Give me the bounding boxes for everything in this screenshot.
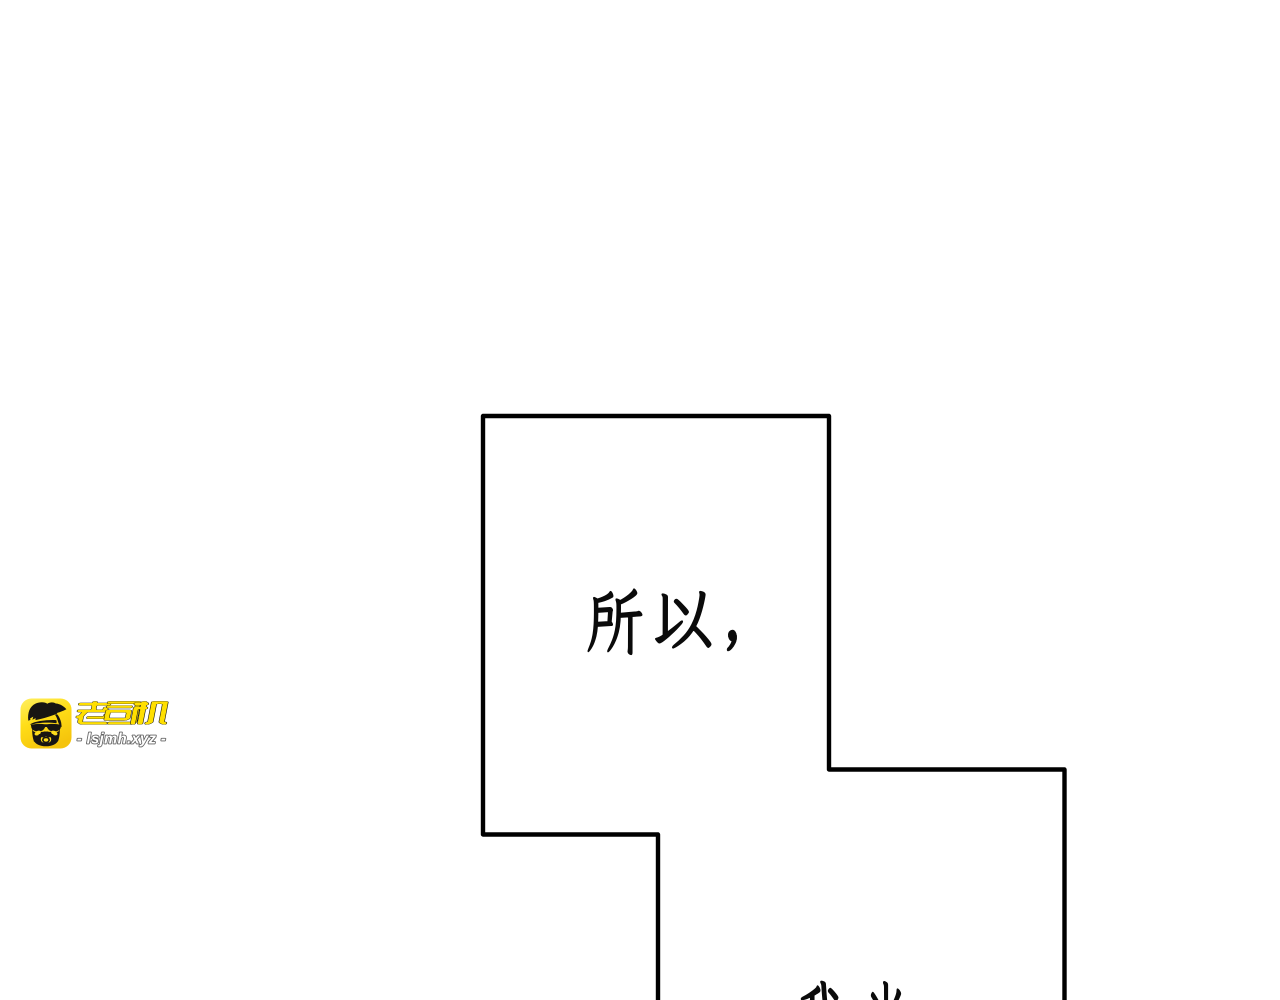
svg-text:- lsjmh.xyz -: - lsjmh.xyz - (77, 732, 166, 748)
